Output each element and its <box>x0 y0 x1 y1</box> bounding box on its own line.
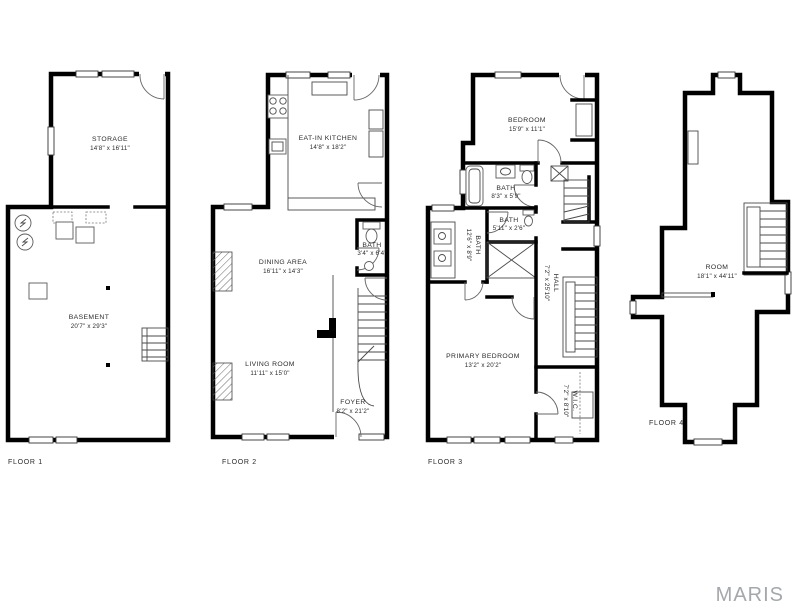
room-dims: 20'7" x 29'3" <box>71 323 108 330</box>
room-dims: 16'11" x 14'3" <box>263 268 303 275</box>
window <box>555 437 573 443</box>
door-arc <box>538 140 561 163</box>
floor-label: FLOOR 2 <box>222 459 257 466</box>
svg-text:7'2" x 25'10": 7'2" x 25'10" <box>543 265 550 302</box>
window <box>474 437 500 443</box>
kitchen-island <box>312 82 347 95</box>
door-arc <box>536 392 558 414</box>
stair-rail-curve <box>358 346 374 406</box>
toilet-tank <box>363 222 380 229</box>
staircase <box>744 203 787 275</box>
room-label: ROOM <box>706 264 729 271</box>
room-dims: 8'2" x 21'2" <box>337 408 370 415</box>
window <box>718 72 735 78</box>
vanity-sink <box>434 229 451 244</box>
window <box>694 439 722 445</box>
room-label: DINING AREA <box>259 259 307 266</box>
room-label: LIVING ROOM <box>245 361 295 368</box>
exterior-wall <box>633 75 788 442</box>
room-label: STORAGE <box>92 136 128 143</box>
floor-plan-page: STORAGE 14'8" x 16'11" BASEMENT 20'7" x … <box>0 0 792 612</box>
exterior-wall <box>8 74 168 440</box>
window <box>267 434 289 440</box>
svg-text:12'6" x 8'9": 12'6" x 8'9" <box>465 229 472 262</box>
window <box>224 204 252 210</box>
toilet-bowl <box>525 216 533 226</box>
kitchen-sink <box>269 139 286 154</box>
shower-x <box>487 242 536 278</box>
svg-text:BATH: BATH <box>474 235 481 254</box>
floor-1-plan: STORAGE 14'8" x 16'11" BASEMENT 20'7" x … <box>8 71 168 466</box>
room-dims: 14'8" x 16'11" <box>90 145 130 152</box>
floor-2-plan: EAT-IN KITCHEN 14'8" x 18'2" BATH 3'4" x… <box>213 72 387 466</box>
counter-peninsula <box>288 198 375 210</box>
room-label: EAT-IN KITCHEN <box>299 135 358 142</box>
room-label: BATH <box>362 242 381 249</box>
floor-label: FLOOR 3 <box>428 459 463 466</box>
door-opening <box>334 434 360 440</box>
door-opening <box>559 72 585 78</box>
stair-treads <box>575 285 597 349</box>
staircase <box>142 328 168 361</box>
room-dims: 14'8" x 18'2" <box>310 144 347 151</box>
wall-stub <box>317 318 336 338</box>
window <box>102 71 134 77</box>
door-arc <box>465 282 483 300</box>
window <box>56 437 77 443</box>
stair-treads <box>358 296 387 360</box>
room-label: FOYER <box>340 399 365 406</box>
window <box>48 127 54 155</box>
window <box>447 437 471 443</box>
toilet-tank <box>523 210 534 215</box>
room-dims: 15'9" x 11'1" <box>509 126 545 133</box>
window <box>495 72 521 78</box>
appliance-outline <box>53 212 72 223</box>
door-arc <box>140 74 164 99</box>
window <box>460 170 466 194</box>
support-post <box>106 286 110 290</box>
room-dims: 11'11" x 15'0" <box>250 370 289 377</box>
door-arc <box>358 183 382 207</box>
stair-treads <box>564 188 589 220</box>
door-opening <box>139 71 165 77</box>
door-arc <box>354 75 379 100</box>
floor-4-plan: ROOM 18'1" x 44'11" FLOOR 4 <box>630 72 791 445</box>
staircase <box>358 278 387 406</box>
room-label: BATH <box>496 185 515 192</box>
window <box>29 437 53 443</box>
wall-closet <box>688 131 698 164</box>
room-label: PRIMARY BEDROOM <box>446 353 520 360</box>
front-door-arc <box>336 412 361 437</box>
appliance <box>29 283 47 299</box>
staircase-upper <box>564 180 589 222</box>
knee-wall-railing <box>662 293 713 297</box>
support-post <box>106 363 110 367</box>
bedroom-closet <box>576 104 592 136</box>
vanity-sink <box>434 251 451 266</box>
refrigerator <box>369 110 383 129</box>
room-dims: 5'11" x 2'6" <box>493 225 525 232</box>
window <box>328 72 350 78</box>
room-dims: 3'4" x 6'4" <box>357 250 386 257</box>
window <box>432 205 454 211</box>
shower <box>487 242 536 278</box>
room-dims: 18'1" x 44'11" <box>697 273 737 280</box>
stair-banister <box>747 207 760 267</box>
chimney-hatch <box>213 363 232 400</box>
stair-treads <box>142 328 168 361</box>
chimney-hatch <box>213 252 232 291</box>
svg-text:W.I.C.: W.I.C. <box>571 391 578 412</box>
railing-post <box>711 292 715 297</box>
window <box>594 226 600 246</box>
bath-sink <box>365 262 374 271</box>
room-dims: 8'3" x 5'9" <box>491 193 520 200</box>
appliance-outline <box>86 212 106 223</box>
floor-plan-canvas: STORAGE 14'8" x 16'11" BASEMENT 20'7" x … <box>0 0 792 612</box>
closet-door-x <box>551 166 568 181</box>
window <box>76 71 98 77</box>
window <box>286 72 310 78</box>
stair-treads <box>760 211 787 267</box>
stair-banister <box>566 282 575 352</box>
toilet-bowl <box>522 171 532 184</box>
window <box>505 437 530 443</box>
door-arc <box>365 278 387 300</box>
appliance <box>76 227 94 243</box>
vertical-room-label: BATH 12'6" x 8'9" <box>465 229 481 262</box>
room-label: BASEMENT <box>69 314 110 321</box>
window <box>630 301 636 314</box>
window <box>242 434 264 440</box>
floor-3-plan: BEDROOM 15'9" x 11'1" BATH 8'3" x 5'9" B… <box>428 72 600 466</box>
room-dims: 13'2" x 20'2" <box>465 362 502 369</box>
floor-label: FLOOR 4 <box>649 420 684 427</box>
vertical-room-label: W.I.C. 7'2" x 8'10" <box>562 385 578 418</box>
floor-label: FLOOR 1 <box>8 459 43 466</box>
door-opening <box>352 72 380 78</box>
room-label: BEDROOM <box>508 117 546 124</box>
appliance <box>56 222 73 239</box>
door-arc <box>512 297 534 319</box>
staircase-lower <box>563 277 597 357</box>
door-arc <box>560 75 584 99</box>
room-label: BATH <box>499 217 518 224</box>
svg-text:7'2" x 8'10": 7'2" x 8'10" <box>562 385 569 418</box>
svg-text:HALL: HALL <box>552 274 559 293</box>
toilet-bowl <box>366 229 377 243</box>
window <box>359 434 384 440</box>
bath-sink <box>496 165 515 178</box>
pantry-cabinet <box>369 131 383 157</box>
maris-watermark: MARIS <box>716 584 784 606</box>
hall-closet <box>551 166 568 181</box>
vertical-room-label: HALL 7'2" x 25'10" <box>543 265 559 302</box>
